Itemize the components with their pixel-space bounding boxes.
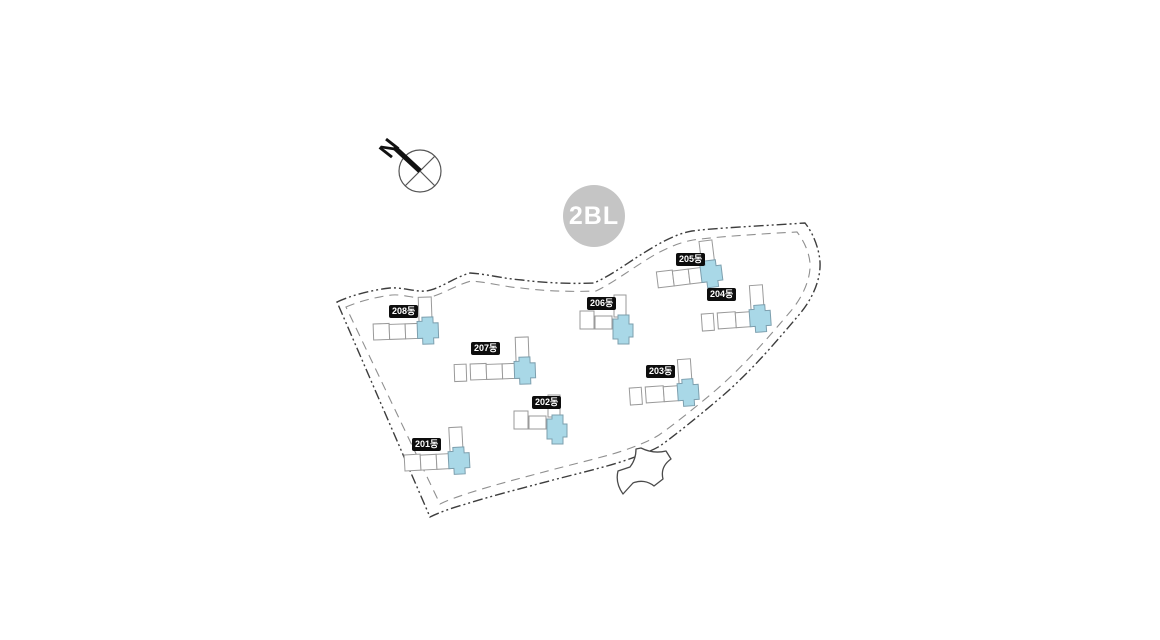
building-label-205: 205동 — [676, 253, 705, 266]
building-shape — [486, 364, 503, 380]
building-shape — [547, 415, 567, 444]
building-shape — [529, 416, 546, 429]
building-shape — [701, 313, 714, 331]
building-shape — [389, 324, 406, 340]
north-label: N — [374, 133, 405, 162]
building-shape — [629, 387, 642, 405]
building-shape — [514, 357, 536, 385]
building-label-204: 204동 — [707, 288, 736, 301]
building-shape — [470, 363, 487, 380]
building-shape — [420, 454, 437, 470]
building-shape — [373, 323, 390, 340]
site-plan: N 2BL 201동202동203동204동205동206동207동208동 — [0, 0, 1160, 640]
building-shape — [514, 411, 528, 429]
building-shape — [417, 317, 439, 345]
building-label-201: 201동 — [412, 438, 441, 451]
building-shape — [595, 316, 612, 329]
building-label-207: 207동 — [471, 342, 500, 355]
building-label-206: 206동 — [587, 297, 616, 310]
building-shape — [404, 454, 421, 471]
entrance-stub — [617, 448, 671, 494]
building-201 — [403, 427, 470, 477]
building-label-203: 203동 — [646, 365, 675, 378]
site-boundary-outer — [337, 223, 820, 517]
building-label-202: 202동 — [532, 396, 561, 409]
building-shape — [613, 315, 633, 344]
building-shape — [580, 311, 594, 329]
building-shape — [717, 312, 736, 329]
building-205 — [653, 239, 723, 294]
building-shape — [645, 386, 664, 403]
building-shape — [454, 364, 467, 381]
compass-icon: N — [374, 133, 441, 192]
building-shape — [672, 269, 690, 286]
building-shape — [656, 270, 674, 288]
building-label-208: 208동 — [389, 305, 418, 318]
block-badge: 2BL — [563, 185, 625, 247]
site-plan-drawing: N — [0, 0, 1160, 640]
